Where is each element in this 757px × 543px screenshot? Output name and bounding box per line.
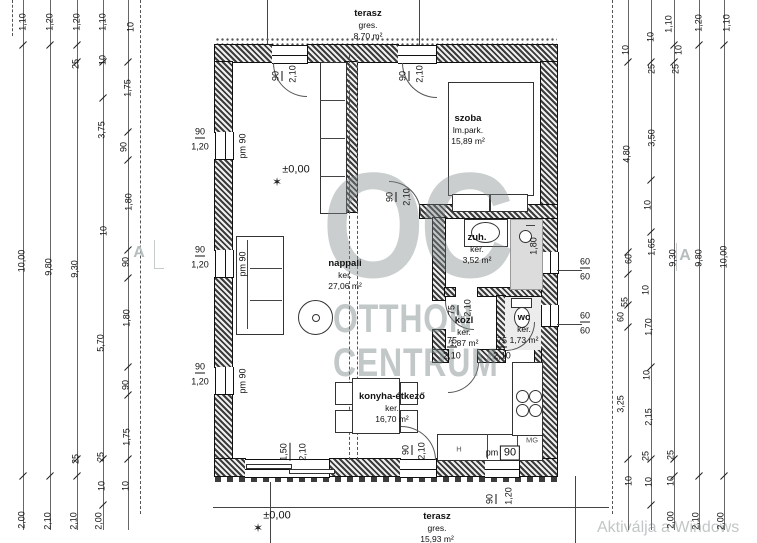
dim-label-right: 10,00 [720, 246, 729, 269]
opening-label: 1,20 [505, 487, 514, 505]
level-marker-icon: ✶ [272, 176, 282, 188]
room-material: ker. [359, 403, 425, 414]
room-area: 16,70 m² [359, 414, 425, 425]
opening-label: 90 [195, 128, 205, 139]
dim-label-left: 1,20 [46, 13, 55, 31]
dim-label-left: 10 [99, 55, 108, 65]
room-label-8: teraszgres.15,93 m² [420, 511, 454, 543]
dimension-rail [651, 0, 652, 530]
dim-label-right: 2,00 [667, 511, 676, 529]
room-area: 15,89 m² [451, 136, 485, 147]
dim-label-left: 10,00 [18, 250, 27, 273]
dim-label-left: 2,00 [95, 512, 104, 530]
window-left-2 [215, 250, 234, 278]
dim-label-right: 10 [675, 45, 684, 55]
sofa-cushion-line-2 [250, 300, 282, 301]
otthon-centrum-brand-bottom: CENTRUM [333, 343, 499, 383]
wall-bath-bottom-3 [535, 350, 541, 362]
chair-1 [335, 382, 353, 405]
opening-label: 1,50 [280, 443, 291, 461]
ext-line-window-bath [557, 270, 582, 271]
room-material: lm.park. [451, 125, 485, 136]
opening-label: 2,10 [403, 188, 412, 206]
room-label-1: teraszgres.8,70 m² [354, 8, 383, 41]
sliding-door-leaf-2 [289, 469, 335, 474]
terrace-bottom-side-right [575, 476, 576, 543]
dim-label-left: 2,10 [44, 512, 53, 530]
room-material: gres. [420, 523, 454, 534]
room-material: ker. [463, 244, 492, 255]
opening-label: pm 90 [239, 368, 248, 393]
dim-label-left: 9,30 [71, 260, 80, 278]
dim-label-right: 10 [647, 32, 656, 42]
window-left-1 [215, 132, 234, 160]
room-name: zuh. [463, 232, 492, 244]
room-label-2: szobalm.park.15,89 m² [451, 113, 485, 146]
opening-label: 2,10 [299, 443, 308, 461]
wall-left-1 [215, 62, 232, 132]
dim-label-left: 5,70 [97, 334, 106, 352]
wall-right-3 [541, 327, 557, 459]
dim-label-left: 10 [98, 481, 107, 491]
dim-label-right: 25 [672, 64, 681, 74]
opening-label: 75 [497, 337, 507, 348]
wall-right-2 [541, 274, 557, 305]
opening-label: 60 [580, 273, 590, 282]
opening-label: 60 [580, 258, 590, 269]
opening-label: 60 [580, 327, 590, 336]
dim-label-right: 10 [643, 370, 652, 380]
opening-label: 2,10 [418, 442, 427, 460]
dim-label-left: 90 [122, 380, 131, 390]
dim-label-right: 10 [642, 285, 651, 295]
window-bottom-kitchen [485, 459, 520, 478]
level-label: ±0,00 [282, 165, 309, 176]
dim-label-right: 3,25 [617, 395, 626, 413]
room-name: konyha-étkező [359, 391, 425, 403]
section-marker: A [679, 248, 691, 264]
room-area: 1,73 m² [510, 335, 539, 346]
dim-label-right: 9,80 [695, 249, 704, 267]
door-top-terrace [272, 45, 308, 64]
stove-burner-2 [529, 390, 542, 403]
opening-label: 60 [580, 312, 590, 323]
dim-label-right: 1,10 [723, 14, 732, 32]
wall-left-3 [215, 278, 232, 367]
wall-bottom-1 [215, 459, 245, 476]
dim-label-left: 1,80 [123, 309, 132, 327]
dim-label-right: 2,10 [692, 512, 701, 530]
opening-label: 2,10 [416, 65, 425, 83]
room-area: 8,70 m² [354, 31, 383, 42]
wall-right-1 [541, 62, 557, 252]
opening-label: 90 [195, 246, 205, 257]
dim-label-left: 1,10 [19, 13, 28, 31]
opening-label: 90 [195, 363, 205, 374]
stove-burner-3 [516, 404, 529, 417]
insulation-stipple-top [215, 37, 557, 45]
dim-label-left: 1,75 [123, 428, 132, 446]
opening-label: 2,10 [493, 352, 511, 361]
opening-label: 90 [402, 445, 413, 455]
terrace-bottom-edge [213, 507, 609, 508]
dim-label-left: 2,10 [70, 512, 79, 530]
room-material: ker. [450, 327, 479, 338]
wardrobe-shelf-2 [320, 138, 345, 139]
room-label-4: zuh.ker.3,52 m² [463, 232, 492, 265]
appliance-label: H [456, 445, 461, 453]
dim-label-right: 2,00 [717, 512, 726, 530]
wardrobe-shelf-1 [320, 100, 345, 101]
opening-label: 90 [500, 446, 520, 461]
room-material: gres. [354, 20, 383, 31]
floor-plan: OC OTTHON CENTRUM Aktiválja a Windows 1,… [0, 0, 757, 543]
window-left-3 [215, 367, 234, 395]
room-area: 15,93 m² [420, 534, 454, 543]
dim-label-right: 55 [621, 297, 630, 307]
dim-label-left: 2,00 [18, 511, 27, 529]
dim-label-right: 1,70 [645, 318, 654, 336]
round-rug-center [312, 314, 320, 322]
level-marker-icon: ✶ [253, 522, 263, 534]
opening-label: 90 [272, 71, 283, 81]
wall-bottom-2 [330, 459, 400, 476]
opening-label: 75 [448, 305, 459, 315]
wall-left-2 [215, 160, 232, 250]
room-material: ker. [328, 270, 362, 281]
dim-label-right: 3,50 [648, 129, 657, 147]
dim-label-right: 10 [645, 477, 654, 487]
door-bottom-terrace [400, 459, 437, 478]
dim-label-right: 10 [622, 45, 631, 55]
dim-label-right: 60 [617, 312, 626, 322]
room-name: szoba [451, 113, 485, 125]
stove-burner-4 [529, 404, 542, 417]
section-marker-line-left [154, 240, 155, 268]
wall-top-2 [308, 45, 398, 62]
dim-label-left: 1,20 [73, 13, 82, 31]
appliance-label: MG [526, 436, 538, 444]
dim-label-left: 25 [72, 454, 81, 464]
dim-label-left: 9,80 [45, 258, 54, 276]
wall-top-3 [437, 45, 557, 62]
section-marker-foot-left [154, 268, 164, 269]
section-marker: A [133, 245, 145, 261]
dim-label-left: 25 [97, 452, 106, 462]
door-top-szoba [398, 45, 437, 64]
room-name: nappali [328, 258, 362, 270]
dim-label-right: 10 [644, 200, 653, 210]
opening-label: pm 90 [239, 133, 248, 158]
opening-label: 1,80 [530, 237, 539, 255]
dim-label-left: 25 [72, 59, 81, 69]
opening-label: pm [486, 449, 499, 458]
room-label-7: konyha-étkezőker.16,70 m² [359, 391, 425, 424]
dim-label-right: 9,30 [669, 249, 678, 267]
dim-label-right: 25 [667, 450, 676, 460]
room-material: ker. [510, 324, 539, 335]
sliding-door-leaf-1 [246, 464, 292, 469]
opening-label: 90 [399, 71, 410, 81]
level-label: ±0,00 [263, 511, 290, 522]
dim-label-right: 10 [667, 476, 676, 486]
shower-head-arm [526, 225, 535, 226]
dim-label-right: 10 [625, 476, 634, 486]
wall-bottom-4 [520, 459, 557, 476]
room-label-3: nappaliker.27,06 m² [328, 258, 362, 291]
opening-label: 90 [386, 192, 397, 202]
boundary-dash-corner [12, 0, 13, 36]
dim-label-left: 1,75 [124, 79, 133, 97]
boundary-dash-right [612, 0, 613, 514]
dim-label-left: 10 [127, 22, 136, 32]
wall-bottom-3 [437, 459, 485, 476]
room-name: wc [510, 312, 539, 324]
room-area: 1,87 m² [450, 338, 479, 349]
dim-label-right: 60 [625, 254, 634, 264]
sofa-cushion-line-1 [250, 268, 282, 269]
dim-label-left: 10 [122, 481, 131, 491]
dim-label-right: 4,80 [623, 145, 632, 163]
stove-burner-1 [516, 390, 529, 403]
room-area: 3,52 m² [463, 255, 492, 266]
dim-label-left: 3,75 [98, 121, 107, 139]
dimension-rail [103, 0, 104, 530]
opening-label: 2,10 [289, 65, 298, 83]
opening-label: 2,10 [443, 352, 461, 361]
ext-line-window-wc [557, 324, 582, 325]
chair-2 [335, 410, 353, 433]
dim-label-right: 25 [648, 64, 657, 74]
dim-label-left: 90 [120, 142, 129, 152]
dim-label-left: 10 [100, 226, 109, 236]
room-area: 27,06 m² [328, 281, 362, 292]
room-name: közl [450, 315, 479, 327]
opening-label: 1,20 [191, 261, 209, 270]
dim-label-right: 1,65 [648, 238, 657, 256]
dim-label-left: 1,80 [125, 193, 134, 211]
room-label-6: wcker.1,73 m² [510, 312, 539, 345]
dim-label-right: 1,10 [665, 15, 674, 33]
room-name: terasz [420, 511, 454, 523]
room-label-5: közlker.1,87 m² [450, 315, 479, 348]
dim-label-right: 2,15 [645, 408, 654, 426]
dim-label-left: 1,10 [99, 13, 108, 31]
room-name: terasz [354, 8, 383, 20]
dim-label-right: 25 [642, 451, 651, 461]
wall-top-1 [215, 45, 272, 62]
opening-label: 1,20 [191, 143, 209, 152]
dim-label-left: 90 [122, 257, 131, 267]
opening-label: 90 [486, 494, 497, 504]
opening-label: 1,20 [191, 378, 209, 387]
opening-label: pm 90 [239, 251, 248, 276]
dim-label-right: 1,20 [695, 14, 704, 32]
dimension-rail [628, 0, 629, 530]
